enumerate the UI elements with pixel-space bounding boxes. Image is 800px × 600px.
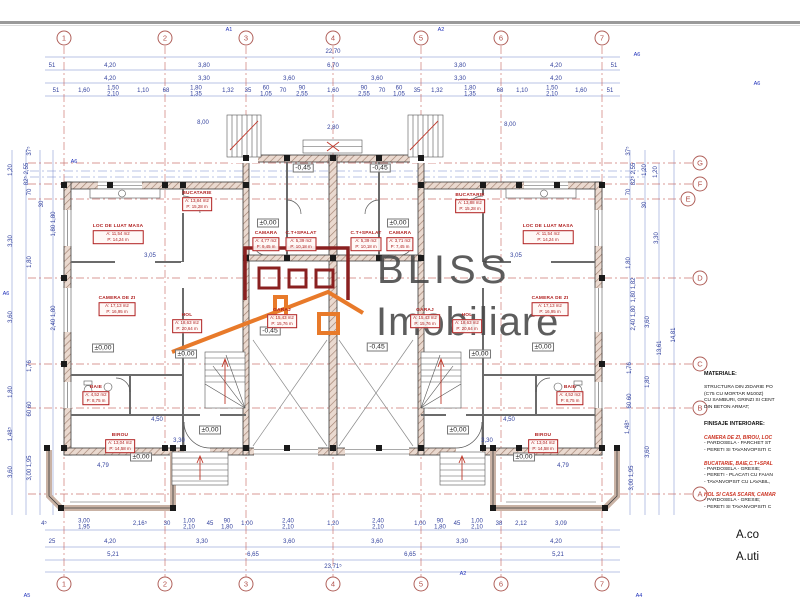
materiale-title: MATERIALE: (704, 371, 800, 377)
finisaje-line: - PERETI SI TAVANVOPSITI C (704, 505, 800, 512)
entry-steps (172, 452, 485, 485)
area-built-label: A.co (736, 529, 759, 541)
finisaje-line: - TAVANVOPSIT CU LAVABIL, (704, 480, 800, 487)
area-usable-label: A.uti (736, 551, 759, 563)
notes-block: MATERIALE: STRUCTURA DIN ZIDARIE PO(C75 … (704, 371, 800, 512)
finisaje-line: - PARDOSELA - GRESIE; (704, 498, 800, 505)
logo-chimney (275, 297, 286, 318)
finisaje-line: - PERETI - PLACATI CU FAIAN (704, 473, 800, 480)
materiale-line: CU SAMBURI, GRINZI SI CENT (704, 398, 800, 405)
finisaje-line: - PARDOSELA - PARCHET ST (704, 441, 800, 448)
drawing-sheet: BLISS Imobiliare 22,70514,203,806,703,80… (0, 0, 800, 600)
dimension-lines (12, 57, 674, 572)
finisaje-line: - PERETI SI TAVANVOPSITI C (704, 448, 800, 455)
top-stairs (227, 115, 443, 157)
exterior-walls (64, 155, 602, 455)
materiale-line: DIN BETON ARMAT; (704, 405, 800, 412)
floor-plan-drawing (0, 0, 800, 600)
finisaje-title: FINISAJE INTERIOARE: (704, 421, 800, 427)
materiale-line: STRUCTURA DIN ZIDARIE PO (704, 385, 800, 392)
